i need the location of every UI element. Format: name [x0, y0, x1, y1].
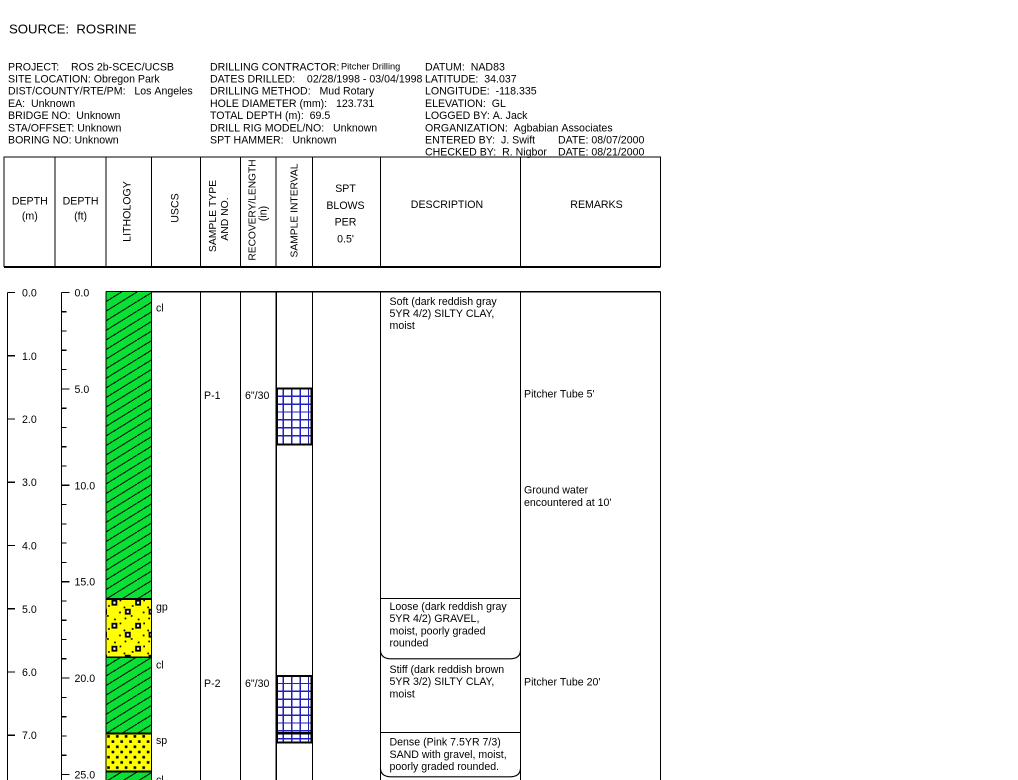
svg-text:SAMPLE INTERVAL: SAMPLE INTERVAL	[290, 163, 301, 257]
svg-text:moist, poorly graded: moist, poorly graded	[390, 625, 486, 637]
svg-text:DIST/COUNTY/RTE/PM: Los Ange: DIST/COUNTY/RTE/PM: Los Angeles	[8, 86, 193, 98]
svg-text:LITHOLOGY: LITHOLOGY	[122, 181, 134, 242]
svg-text:ENTERED BY: J. Swift: ENTERED BY: J. Swift	[425, 135, 535, 147]
svg-text:LATITUDE: 34.037: LATITUDE: 34.037	[425, 74, 517, 86]
svg-text:Pitcher Drilling: Pitcher Drilling	[341, 62, 400, 72]
svg-text:DATES DRILLED: 02/28/1998 -: DATES DRILLED: 02/28/1998 - 03/04/1998	[210, 74, 423, 86]
svg-text:gp: gp	[156, 602, 168, 614]
svg-text:5.0: 5.0	[22, 604, 37, 616]
svg-text:PER: PER	[335, 217, 357, 229]
svg-text:USCS: USCS	[169, 193, 181, 222]
svg-text:DEPTH: DEPTH	[12, 196, 48, 208]
svg-text:4.0: 4.0	[22, 541, 37, 553]
svg-text:SOURCE: ROSRINE: SOURCE: ROSRINE	[9, 21, 137, 36]
svg-text:Pitcher Tube 20': Pitcher Tube 20'	[524, 677, 600, 689]
svg-text:ORGANIZATION: Agbabian Associ: ORGANIZATION: Agbabian Associates	[425, 122, 613, 134]
svg-text:20.0: 20.0	[75, 673, 96, 685]
svg-text:BRIDGE NO: Unknown: BRIDGE NO: Unknown	[8, 110, 121, 122]
svg-text:Ground water: Ground water	[524, 485, 589, 497]
svg-text:moist: moist	[390, 688, 415, 700]
svg-text:encountered at 10': encountered at 10'	[524, 497, 611, 509]
svg-text:25.0: 25.0	[75, 770, 96, 780]
svg-text:BORING NO: Unknown: BORING NO: Unknown	[8, 135, 119, 147]
svg-text:LOGGED BY: A. Jack: LOGGED BY: A. Jack	[425, 110, 528, 122]
svg-text:DATE: 08/07/2000: DATE: 08/07/2000	[558, 135, 644, 147]
svg-text:sp: sp	[156, 735, 167, 747]
svg-text:SPT HAMMER: Unknown: SPT HAMMER: Unknown	[210, 135, 337, 147]
svg-text:STA/OFFSET: Unknown: STA/OFFSET: Unknown	[8, 122, 122, 134]
svg-text:cl: cl	[156, 775, 164, 780]
svg-text:SPT: SPT	[335, 183, 356, 195]
svg-text:DRILLING METHOD: Mud Rotary: DRILLING METHOD: Mud Rotary	[210, 86, 375, 98]
svg-text:TOTAL DEPTH (m): 69.5: TOTAL DEPTH (m): 69.5	[210, 110, 330, 122]
svg-text:Soft (dark reddish gray: Soft (dark reddish gray	[390, 296, 498, 308]
svg-text:DRILL RIG MODEL/NO: Unknown: DRILL RIG MODEL/NO: Unknown	[210, 122, 377, 134]
svg-text:5.0: 5.0	[75, 384, 90, 396]
svg-text:Loose (dark reddish gray: Loose (dark reddish gray	[390, 601, 508, 613]
svg-text:1.0: 1.0	[22, 351, 37, 363]
svg-text:P-2: P-2	[204, 678, 221, 690]
svg-text:SAND with gravel, moist,: SAND with gravel, moist,	[390, 749, 507, 761]
svg-text:REMARKS: REMARKS	[570, 199, 622, 211]
svg-text:BLOWS: BLOWS	[326, 200, 364, 212]
svg-text:0.0: 0.0	[22, 288, 37, 300]
svg-text:(ft): (ft)	[74, 211, 87, 223]
svg-text:SITE LOCATION: Obregon Park: SITE LOCATION: Obregon Park	[8, 74, 160, 86]
svg-text:Stiff (dark reddish brown: Stiff (dark reddish brown	[390, 664, 505, 676]
svg-text:ELEVATION: GL: ELEVATION: GL	[425, 98, 506, 110]
svg-text:cl: cl	[156, 660, 164, 672]
svg-text:5YR 3/2) SILTY CLAY,: 5YR 3/2) SILTY CLAY,	[390, 676, 495, 688]
svg-text:3.0: 3.0	[22, 477, 37, 489]
svg-text:6"/30: 6"/30	[245, 390, 269, 402]
svg-text:AND NO.: AND NO.	[220, 197, 231, 240]
svg-text:EA: Unknown: EA: Unknown	[8, 98, 75, 110]
svg-text:DESCRIPTION: DESCRIPTION	[411, 199, 483, 211]
svg-text:DRILLING CONTRACTOR:: DRILLING CONTRACTOR:	[210, 61, 339, 73]
svg-text:SAMPLE TYPE: SAMPLE TYPE	[208, 180, 219, 252]
svg-text:moist: moist	[390, 320, 415, 332]
svg-text:P-1: P-1	[204, 390, 221, 402]
svg-text:0.0: 0.0	[75, 288, 90, 300]
svg-text:5YR 4/2) SILTY CLAY,: 5YR 4/2) SILTY CLAY,	[390, 308, 495, 320]
svg-text:6"/30: 6"/30	[245, 678, 269, 690]
svg-text:HOLE DIAMETER (mm): 123.731: HOLE DIAMETER (mm): 123.731	[210, 98, 374, 110]
svg-text:rounded: rounded	[390, 638, 429, 650]
svg-text:Dense (Pink 7.5YR 7/3): Dense (Pink 7.5YR 7/3)	[390, 737, 501, 749]
svg-text:(in): (in)	[257, 206, 269, 221]
svg-text:poorly graded rounded.: poorly graded rounded.	[390, 761, 500, 773]
svg-text:15.0: 15.0	[75, 577, 96, 589]
svg-text:cl: cl	[156, 303, 164, 315]
svg-text:2.0: 2.0	[22, 414, 37, 426]
svg-text:LONGITUDE: -118.335: LONGITUDE: -118.335	[425, 86, 537, 98]
svg-text:DEPTH: DEPTH	[63, 196, 99, 208]
svg-text:6.0: 6.0	[22, 667, 37, 679]
svg-text:7.0: 7.0	[22, 730, 37, 742]
svg-text:0.5': 0.5'	[337, 233, 354, 245]
svg-text:Pitcher Tube 5': Pitcher Tube 5'	[524, 389, 595, 401]
svg-text:10.0: 10.0	[75, 480, 96, 492]
svg-text:(m): (m)	[22, 211, 38, 223]
svg-text:5YR 4/2) GRAVEL,: 5YR 4/2) GRAVEL,	[390, 613, 480, 625]
svg-text:PROJECT: ROS 2b-SCEC/UCSB: PROJECT: ROS 2b-SCEC/UCSB	[8, 61, 174, 73]
svg-text:DATUM: NAD83: DATUM: NAD83	[425, 61, 505, 73]
